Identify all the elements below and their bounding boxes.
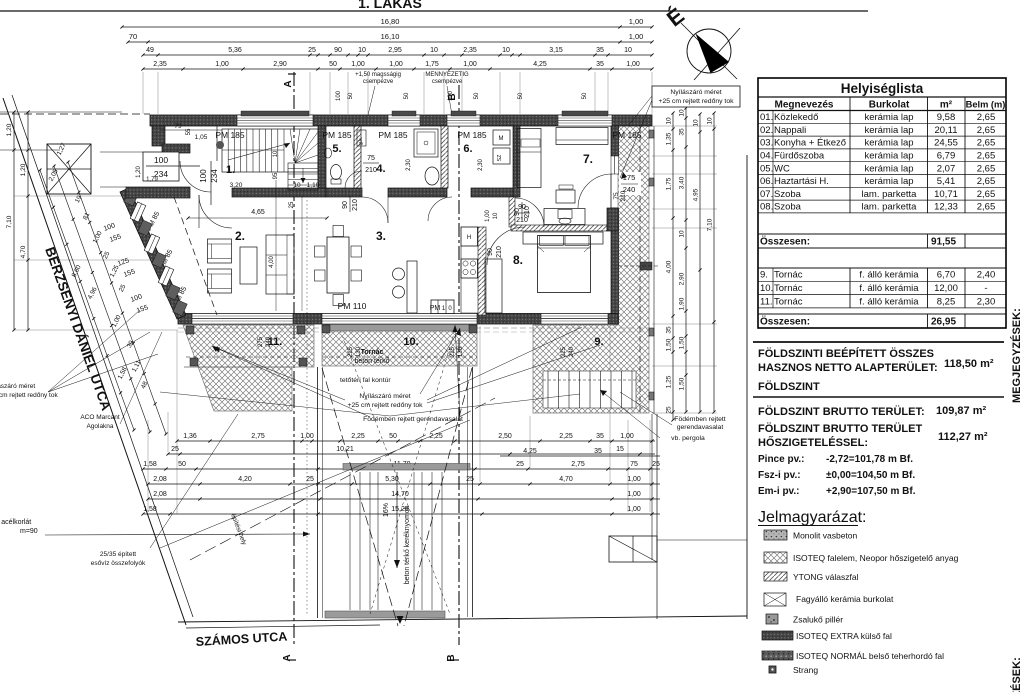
svg-text:10.: 10.	[403, 336, 418, 348]
svg-text:1,05: 1,05	[195, 134, 208, 141]
svg-text:10: 10	[502, 47, 510, 54]
svg-text:1,00: 1,00	[620, 433, 634, 440]
svg-text:Nyílászáró méret: Nyílászáró méret	[0, 383, 35, 390]
svg-text:Fsz-i pv.:: Fsz-i pv.:	[758, 470, 801, 481]
svg-text:Belm (m): Belm (m)	[966, 100, 1006, 110]
svg-text:4,20: 4,20	[238, 476, 252, 483]
svg-text:2,65: 2,65	[977, 189, 996, 200]
svg-text:08.: 08.	[760, 202, 773, 213]
svg-text:2,75: 2,75	[251, 433, 265, 440]
svg-text:+25 cm rejtett redőny tok: +25 cm rejtett redőny tok	[0, 392, 58, 399]
svg-text:1,00: 1,00	[351, 61, 365, 68]
svg-text:5,36: 5,36	[228, 47, 242, 54]
svg-text:7.: 7.	[583, 152, 593, 166]
svg-text:50: 50	[329, 61, 337, 68]
svg-text:ISOTEQ NORMÁL belső teherhordó: ISOTEQ NORMÁL belső teherhordó fal	[796, 651, 944, 661]
svg-text:91,55: 91,55	[931, 237, 956, 248]
svg-text:90: 90	[342, 201, 349, 209]
svg-text:2,95: 2,95	[388, 47, 402, 54]
svg-text:Strang: Strang	[793, 665, 818, 675]
svg-text:240: 240	[569, 346, 575, 357]
svg-text:Összesen:: Összesen:	[760, 315, 810, 328]
svg-text:HŐSZIGETELÉSSEL:: HŐSZIGETELÉSSEL:	[758, 436, 868, 449]
svg-text:4,65: 4,65	[251, 209, 265, 216]
svg-text:4,95: 4,95	[693, 188, 700, 201]
svg-text:112,27 m²: 112,27 m²	[938, 431, 988, 443]
svg-text:10: 10	[707, 117, 714, 125]
svg-text:6,70: 6,70	[937, 270, 956, 281]
svg-text:100: 100	[336, 90, 342, 101]
svg-text:16,10: 16,10	[381, 32, 400, 41]
svg-text:3,40: 3,40	[679, 176, 686, 189]
svg-text:95: 95	[273, 172, 279, 179]
svg-text:03.: 03.	[760, 138, 773, 149]
svg-text:25: 25	[666, 406, 673, 414]
svg-text:kerámia lap: kerámia lap	[864, 125, 913, 136]
svg-text:50: 50	[518, 92, 524, 99]
svg-text:3.: 3.	[376, 229, 386, 243]
svg-text:06.: 06.	[760, 176, 773, 187]
svg-text:m=90: m=90	[20, 528, 38, 535]
svg-text:50: 50	[178, 461, 186, 468]
svg-text:Fürdőszoba: Fürdőszoba	[774, 151, 825, 162]
svg-text:Megnevezés: Megnevezés	[775, 100, 834, 111]
svg-text:kerámia lap: kerámia lap	[864, 138, 913, 149]
svg-text:2,30: 2,30	[977, 296, 996, 307]
svg-text:240: 240	[266, 336, 272, 347]
svg-text:2,90: 2,90	[273, 61, 287, 68]
svg-text:26,95: 26,95	[931, 317, 956, 328]
svg-text:Szoba: Szoba	[774, 189, 802, 200]
svg-text:50: 50	[474, 92, 480, 99]
svg-text:SZ: SZ	[497, 154, 503, 162]
svg-text:1,00: 1,00	[627, 506, 641, 513]
svg-text:2,90: 2,90	[679, 272, 686, 285]
svg-text:PM 110: PM 110	[338, 301, 367, 311]
svg-text:10: 10	[358, 47, 366, 54]
svg-text:24,55: 24,55	[934, 138, 958, 149]
svg-text:10: 10	[679, 230, 686, 238]
svg-text:ISOTEQ EXTRA külső fal: ISOTEQ EXTRA külső fal	[796, 631, 892, 641]
svg-text:1,36: 1,36	[183, 433, 197, 440]
svg-text:Tornác: Tornác	[774, 270, 803, 281]
svg-text:1,75: 1,75	[425, 61, 439, 68]
svg-text:2,35: 2,35	[153, 61, 167, 68]
svg-text:4,25: 4,25	[523, 448, 537, 455]
svg-text:csempézve: csempézve	[363, 79, 394, 85]
svg-text:YTONG válaszfal: YTONG válaszfal	[793, 572, 859, 582]
svg-text:10: 10	[430, 47, 438, 54]
svg-text:1,00: 1,00	[389, 61, 403, 68]
svg-text:210: 210	[620, 190, 627, 201]
svg-text:5,41: 5,41	[937, 176, 956, 187]
svg-text:4,70: 4,70	[20, 245, 27, 258]
svg-text:Em-i pv.:: Em-i pv.:	[758, 486, 799, 497]
svg-text:2,65: 2,65	[977, 202, 996, 213]
svg-text:vb. pergola: vb. pergola	[671, 435, 705, 442]
svg-text:3,20: 3,20	[230, 182, 243, 189]
svg-text:90: 90	[518, 204, 526, 211]
svg-text:75: 75	[613, 192, 620, 200]
svg-text:4,00: 4,00	[269, 256, 275, 268]
svg-text:10: 10	[679, 109, 686, 117]
svg-text:3,15: 3,15	[549, 47, 563, 54]
svg-text:2,07: 2,07	[937, 163, 956, 174]
svg-text:25/35 épített: 25/35 épített	[100, 551, 136, 558]
svg-text:PM 185: PM 185	[378, 130, 408, 140]
svg-text:beton térkő keréknyomok: beton térkő keréknyomok	[404, 505, 411, 584]
svg-text:7,10: 7,10	[707, 218, 714, 231]
svg-text:04.: 04.	[760, 151, 773, 162]
svg-text:2,50: 2,50	[498, 433, 512, 440]
svg-text:2,65: 2,65	[977, 112, 996, 123]
svg-text:Konyha + Étkező: Konyha + Étkező	[774, 138, 846, 149]
svg-text:1,00: 1,00	[627, 476, 641, 483]
svg-text:lam. parketta: lam. parketta	[862, 189, 918, 200]
svg-text:Helyiséglista: Helyiséglista	[841, 81, 924, 96]
svg-text:25: 25	[306, 476, 314, 483]
svg-text:1,58: 1,58	[143, 461, 157, 468]
svg-text:beton térkő: beton térkő	[354, 358, 389, 365]
svg-text:10,71: 10,71	[934, 189, 958, 200]
svg-text:f. álló kerámia: f. álló kerámia	[859, 296, 919, 307]
svg-text:Haztartási H.: Haztartási H.	[774, 176, 829, 187]
svg-text:16%: 16%	[383, 503, 390, 517]
svg-text:1,00: 1,00	[463, 61, 477, 68]
svg-text:25: 25	[516, 461, 524, 468]
svg-text:1,75: 1,75	[666, 177, 673, 190]
svg-text:16,80: 16,80	[381, 17, 400, 26]
svg-text:A: A	[283, 80, 294, 87]
svg-text:35: 35	[596, 61, 604, 68]
svg-text:225: 225	[450, 346, 456, 357]
svg-text:MENNYEZETIG: MENNYEZETIG	[425, 72, 469, 78]
svg-text:25: 25	[308, 47, 316, 54]
svg-text:f. álló kerámia: f. álló kerámia	[859, 283, 919, 294]
svg-text:15: 15	[616, 446, 624, 453]
svg-text:4,25: 4,25	[533, 61, 547, 68]
svg-text:H: H	[467, 235, 471, 241]
svg-text:79: 79	[174, 123, 182, 130]
svg-text:Nappali: Nappali	[774, 125, 806, 136]
svg-text:1,10: 1,10	[307, 182, 320, 189]
svg-text:Nyílászáró méret: Nyílászáró méret	[670, 89, 721, 96]
svg-text:2,65: 2,65	[977, 151, 996, 162]
svg-text:1,50: 1,50	[679, 377, 686, 390]
svg-text:FÖLDSZINT BRUTTO TERÜLET:: FÖLDSZINT BRUTTO TERÜLET:	[758, 405, 925, 418]
svg-text:Födémben rejtett gerendavasala: Födémben rejtett gerendavasalat	[363, 416, 463, 423]
svg-text:05.: 05.	[760, 163, 773, 174]
svg-text:±0,00=104,50 m Bf.: ±0,00=104,50 m Bf.	[826, 470, 915, 481]
svg-text:2,08: 2,08	[153, 491, 167, 498]
svg-text:2.: 2.	[235, 229, 245, 243]
svg-text:275: 275	[258, 336, 264, 347]
svg-text:35: 35	[666, 326, 673, 334]
svg-text:4,70: 4,70	[559, 476, 573, 483]
svg-text:PM: PM	[430, 305, 441, 312]
svg-text:FÖLDSZINTI BEÉPÍTETT ÖSSZES: FÖLDSZINTI BEÉPÍTETT ÖSSZES	[758, 347, 934, 360]
svg-text:100: 100	[199, 169, 208, 183]
svg-text:8,25: 8,25	[937, 296, 956, 307]
svg-text:2,08: 2,08	[153, 476, 167, 483]
svg-text:6,79: 6,79	[937, 151, 956, 162]
svg-text:75: 75	[367, 155, 375, 162]
svg-text:50: 50	[389, 433, 397, 440]
svg-text:10.: 10.	[760, 283, 773, 294]
svg-text:90: 90	[334, 47, 342, 54]
svg-text:2,40: 2,40	[977, 270, 996, 281]
svg-text:1,00: 1,00	[215, 61, 229, 68]
svg-text:2,25: 2,25	[559, 433, 573, 440]
svg-text:Födémben rejtett: Födémben rejtett	[674, 416, 725, 423]
svg-text:FÖLDSZINT: FÖLDSZINT	[758, 380, 820, 393]
svg-text:Tornác: Tornác	[361, 349, 384, 356]
svg-text:f. álló kerámia: f. álló kerámia	[859, 270, 919, 281]
svg-text:Tornác: Tornác	[774, 283, 803, 294]
svg-text:ISOTEQ falelem, Neopor hőszige: ISOTEQ falelem, Neopor hőszigetelő anyag	[793, 553, 959, 563]
svg-text:10: 10	[666, 117, 673, 125]
svg-text:70: 70	[129, 32, 137, 41]
svg-text:35: 35	[596, 47, 604, 54]
svg-text:9,58: 9,58	[937, 112, 956, 123]
svg-text:ACO Marcant: ACO Marcant	[80, 414, 120, 421]
svg-text:Közlekedő: Közlekedő	[774, 112, 818, 123]
svg-text:50: 50	[348, 92, 354, 99]
svg-text:1. LAKÁS: 1. LAKÁS	[358, 0, 422, 11]
svg-text:210: 210	[496, 246, 503, 258]
svg-text:12,33: 12,33	[934, 202, 958, 213]
svg-text:02.: 02.	[760, 125, 773, 136]
svg-text:Tornác: Tornác	[774, 296, 803, 307]
svg-text:B: B	[447, 93, 458, 100]
svg-text:kerámia lap: kerámia lap	[864, 163, 913, 174]
svg-text:14,70: 14,70	[391, 491, 409, 498]
svg-text:11.: 11.	[760, 296, 773, 307]
svg-text:12,00: 12,00	[934, 283, 958, 294]
svg-text:1,00: 1,00	[627, 491, 641, 498]
svg-text:1,00: 1,00	[626, 61, 640, 68]
svg-text:gerendavasalat: gerendavasalat	[677, 424, 724, 431]
svg-text:50: 50	[404, 92, 410, 99]
svg-text:1,35: 1,35	[666, 132, 673, 145]
svg-text:55: 55	[186, 128, 192, 135]
svg-text:PM 185: PM 185	[215, 130, 245, 140]
svg-text:25: 25	[289, 201, 295, 208]
svg-text:tetőtéri fal kontúr: tetőtéri fal kontúr	[340, 377, 391, 384]
svg-text:49: 49	[146, 47, 154, 54]
svg-text:210: 210	[365, 167, 377, 174]
svg-text:225: 225	[348, 346, 354, 357]
svg-text:+25 cm rejtett redőny tok: +25 cm rejtett redőny tok	[659, 98, 735, 105]
svg-text:10: 10	[293, 182, 301, 189]
svg-text:1.: 1.	[226, 164, 235, 176]
svg-text:2,35: 2,35	[463, 47, 477, 54]
svg-text:m²: m²	[940, 100, 953, 111]
svg-text:Nyílászáró méret: Nyílászáró méret	[359, 393, 410, 400]
svg-text:10: 10	[493, 212, 499, 219]
svg-text:M: M	[499, 136, 504, 142]
svg-text:kerámia lap: kerámia lap	[864, 176, 913, 187]
svg-text:1,50: 1,50	[679, 336, 686, 349]
svg-text:Pince pv.:: Pince pv.:	[758, 454, 805, 465]
svg-text:+2,90=107,50 m Bf.: +2,90=107,50 m Bf.	[826, 486, 916, 497]
svg-text:Monolit vasbeton: Monolit vasbeton	[793, 531, 858, 541]
svg-text:10: 10	[273, 150, 279, 157]
svg-text:210: 210	[352, 199, 359, 211]
svg-text:zott acélkorlát: zott acélkorlát	[0, 519, 31, 526]
svg-text:2,65: 2,65	[977, 176, 996, 187]
svg-text:6.: 6.	[463, 143, 472, 155]
svg-text:Fagyálló kerámia burkolat: Fagyálló kerámia burkolat	[796, 594, 894, 604]
svg-text:4,00: 4,00	[666, 260, 673, 273]
svg-text:75: 75	[630, 461, 638, 468]
svg-text:kerámia lap: kerámia lap	[864, 151, 913, 162]
svg-text:lam. parketta: lam. parketta	[862, 202, 918, 213]
svg-text:MEGJEGYZÉSEK:: MEGJEGYZÉSEK:	[1010, 657, 1023, 692]
svg-text:25: 25	[652, 461, 660, 468]
svg-text:90: 90	[487, 248, 494, 256]
svg-text:20,11: 20,11	[934, 125, 957, 136]
svg-text:225: 225	[561, 346, 567, 357]
svg-text:2,30: 2,30	[406, 159, 412, 171]
svg-text:Összesen:: Összesen:	[760, 235, 810, 248]
svg-text:WC: WC	[774, 163, 790, 174]
svg-text:PM 185: PM 185	[322, 130, 352, 140]
svg-text:+1,50 magsságig: +1,50 magsságig	[355, 72, 401, 78]
svg-text:01.: 01.	[760, 112, 773, 123]
svg-text:2,65: 2,65	[977, 125, 996, 136]
svg-text:1,00: 1,00	[485, 210, 491, 222]
svg-text:234: 234	[210, 169, 219, 183]
svg-text:csempézve: csempézve	[432, 79, 463, 85]
svg-text:10: 10	[624, 47, 632, 54]
svg-text:2,75: 2,75	[571, 461, 585, 468]
svg-text:1,50: 1,50	[666, 338, 673, 351]
svg-text:5.: 5.	[332, 143, 341, 155]
svg-text:10: 10	[693, 119, 700, 127]
svg-text:109,87 m²: 109,87 m²	[936, 405, 986, 417]
svg-text:210: 210	[516, 217, 528, 224]
svg-text:1,00: 1,00	[629, 32, 644, 41]
svg-text:100: 100	[154, 155, 168, 165]
svg-text:130: 130	[458, 346, 464, 357]
svg-text:2,65: 2,65	[977, 138, 996, 149]
svg-text:35: 35	[679, 128, 686, 136]
svg-text:esővíz összefolyók: esővíz összefolyók	[91, 560, 146, 567]
svg-text:1,00: 1,00	[629, 17, 644, 26]
svg-text:FÖLDSZINT BRUTTO TERÜLET: FÖLDSZINT BRUTTO TERÜLET	[758, 422, 922, 435]
svg-text:7,10: 7,10	[6, 215, 13, 228]
svg-text:1,25: 1,25	[666, 375, 673, 388]
svg-text:2,30: 2,30	[478, 159, 484, 171]
svg-text:118,50 m²: 118,50 m²	[944, 358, 994, 370]
svg-text:Szoba: Szoba	[774, 202, 802, 213]
svg-text:35: 35	[594, 448, 602, 455]
svg-text:4.: 4.	[376, 163, 385, 175]
svg-text:Burkolat: Burkolat	[869, 100, 910, 111]
svg-text:g.k.: g.k.	[358, 137, 364, 145]
svg-text:9.: 9.	[760, 270, 768, 281]
svg-text:1,79: 1,79	[146, 177, 158, 183]
svg-text:PM 185: PM 185	[457, 130, 487, 140]
svg-text:1,90: 1,90	[679, 297, 686, 310]
svg-text:25: 25	[171, 446, 179, 453]
svg-text:Jelmagyarázat:: Jelmagyarázat:	[758, 509, 867, 526]
svg-text:MEGJEGYZÉSEK:: MEGJEGYZÉSEK:	[1010, 308, 1023, 403]
svg-text:07.: 07.	[760, 189, 773, 200]
svg-text:50: 50	[582, 92, 588, 99]
svg-text:8.: 8.	[513, 253, 523, 267]
svg-text:Zsalukő pillér: Zsalukő pillér	[793, 615, 843, 625]
svg-text:2,25: 2,25	[351, 433, 365, 440]
svg-text:HASZNOS NETTO ALAPTERÜLET:: HASZNOS NETTO ALAPTERÜLET:	[758, 361, 938, 374]
svg-text:Agolakna: Agolakna	[86, 423, 113, 430]
svg-text:+25 cm rejtett redőny tok: +25 cm rejtett redőny tok	[348, 402, 424, 409]
svg-text:kerámia lap: kerámia lap	[864, 112, 913, 123]
svg-text:-2,72=101,78 m Bf.: -2,72=101,78 m Bf.	[826, 454, 913, 465]
svg-text:-: -	[984, 283, 987, 294]
svg-text:10,21: 10,21	[336, 446, 354, 453]
svg-text:35: 35	[596, 433, 604, 440]
svg-text:2,65: 2,65	[977, 163, 996, 174]
svg-text:1,20: 1,20	[136, 166, 142, 178]
